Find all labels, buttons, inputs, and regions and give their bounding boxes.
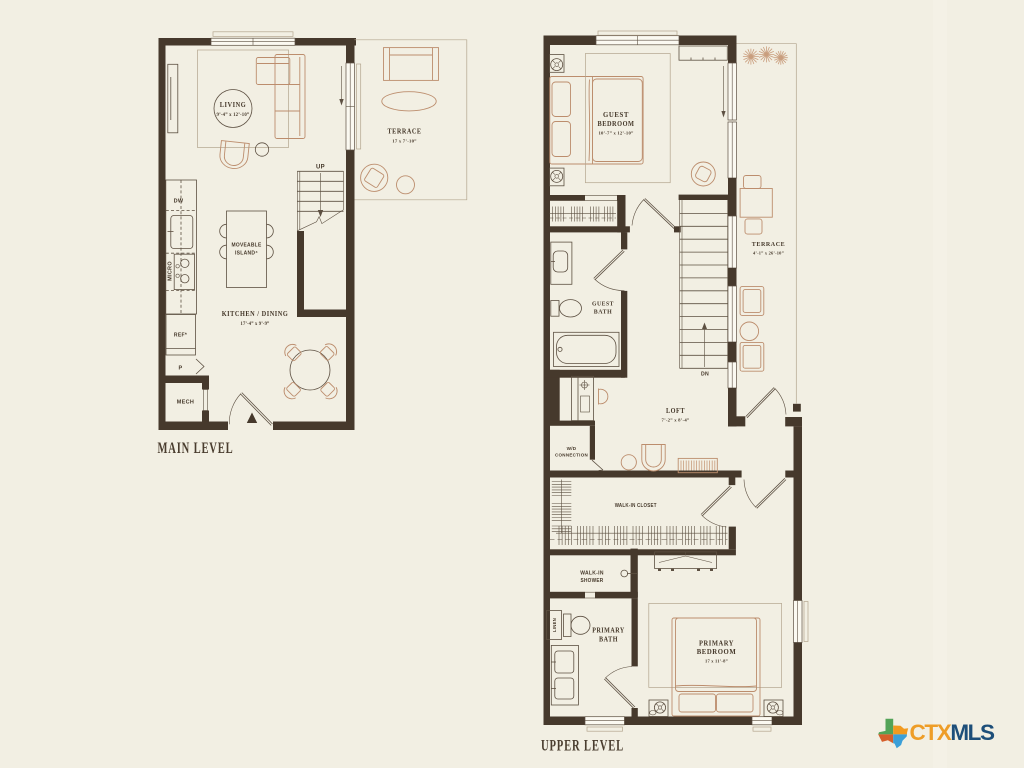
svg-text:WALK-IN: WALK-IN: [580, 571, 604, 577]
svg-text:GUEST: GUEST: [592, 301, 614, 308]
svg-text:17 x 7’-10”: 17 x 7’-10”: [392, 139, 417, 144]
svg-text:BEDROOM: BEDROOM: [598, 120, 635, 128]
svg-text:7’-2” x 8’-4”: 7’-2” x 8’-4”: [662, 418, 691, 423]
svg-text:BEDROOM: BEDROOM: [697, 648, 737, 656]
svg-text:9’-4” x 12’-10”: 9’-4” x 12’-10”: [217, 113, 250, 118]
svg-text:WALK-IN CLOSET: WALK-IN CLOSET: [615, 503, 657, 509]
svg-text:MECH: MECH: [177, 400, 194, 406]
svg-text:PRIMARY: PRIMARY: [592, 627, 625, 635]
svg-text:LOFT: LOFT: [666, 407, 685, 415]
svg-text:4’-1” x 26’-10”: 4’-1” x 26’-10”: [753, 251, 784, 256]
svg-text:REF*: REF*: [174, 333, 187, 339]
svg-text:GUEST: GUEST: [603, 111, 629, 119]
svg-text:KITCHEN / DINING: KITCHEN / DINING: [222, 310, 289, 318]
svg-text:UPPER LEVEL: UPPER LEVEL: [541, 738, 624, 755]
svg-text:UP: UP: [316, 165, 325, 171]
svg-text:DN: DN: [701, 372, 709, 378]
svg-text:MICRO: MICRO: [168, 261, 174, 281]
svg-text:BATH: BATH: [599, 636, 618, 644]
svg-text:ISLAND⁴: ISLAND⁴: [235, 251, 258, 257]
svg-text:P: P: [179, 366, 183, 372]
svg-text:LINEN: LINEN: [552, 618, 557, 632]
svg-text:CONNECTION: CONNECTION: [555, 453, 588, 458]
svg-text:TERRACE: TERRACE: [752, 241, 786, 248]
svg-text:MOVEABLE: MOVEABLE: [232, 243, 262, 249]
svg-text:PRIMARY: PRIMARY: [699, 640, 734, 648]
svg-text:TERRACE: TERRACE: [388, 129, 422, 136]
svg-text:LIVING: LIVING: [220, 101, 247, 109]
svg-text:CTXMLS: CTXMLS: [910, 720, 995, 745]
svg-text:SHOWER: SHOWER: [581, 578, 604, 584]
svg-text:BATH: BATH: [594, 309, 613, 316]
svg-text:W/D: W/D: [567, 446, 577, 451]
svg-text:10’-7” x 12’-10”: 10’-7” x 12’-10”: [599, 131, 634, 136]
svg-text:17 x 11’-8”: 17 x 11’-8”: [705, 659, 728, 664]
svg-text:MAIN LEVEL: MAIN LEVEL: [158, 440, 234, 457]
svg-text:17’-4” x 9’-9”: 17’-4” x 9’-9”: [241, 322, 270, 327]
svg-text:DW: DW: [174, 199, 184, 205]
